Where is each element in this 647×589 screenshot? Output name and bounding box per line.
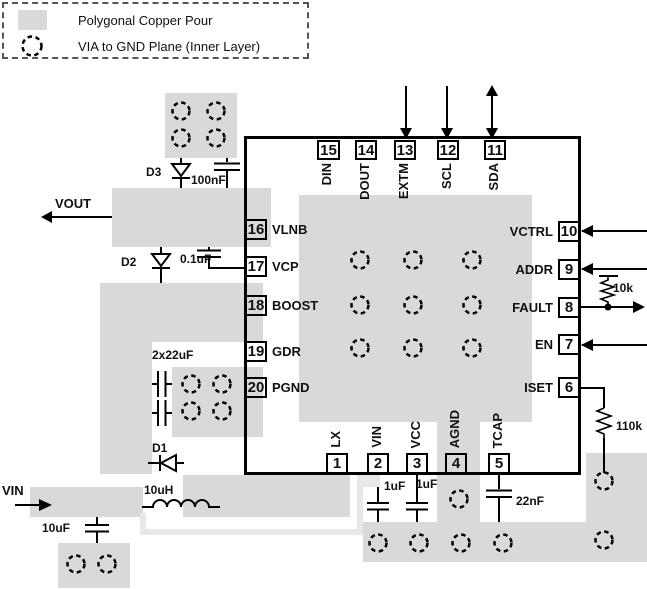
schematic-overlay bbox=[0, 0, 647, 589]
c22nf-symbol bbox=[486, 474, 512, 522]
pin-box-10: 10 bbox=[558, 221, 580, 242]
pin-label-pgnd: PGND bbox=[272, 381, 310, 396]
pin-box-13: 13 bbox=[394, 140, 416, 160]
pin-number: 15 bbox=[320, 143, 337, 158]
pin-box-11: 11 bbox=[484, 140, 506, 160]
pin-number: 6 bbox=[565, 380, 573, 395]
pin-box-20: 20 bbox=[245, 377, 267, 398]
vctrl-arrowhead-icon bbox=[581, 225, 593, 237]
ref-d3: D3 bbox=[146, 165, 161, 179]
pin-number: 4 bbox=[452, 456, 460, 471]
pin-label-sda: SDA bbox=[487, 163, 500, 190]
via-icon bbox=[596, 473, 613, 490]
via-icon bbox=[173, 130, 190, 147]
pin-number: 16 bbox=[248, 222, 265, 237]
val-0p1uf: 0.1uF bbox=[180, 252, 211, 266]
sda-up-arrowhead-icon bbox=[486, 85, 498, 96]
addr-arrowhead-icon bbox=[581, 263, 593, 275]
pin-number: 18 bbox=[248, 298, 265, 313]
d2-cathode-lead bbox=[152, 268, 170, 283]
legend-copper-pour-label: Polygonal Copper Pour bbox=[78, 13, 212, 28]
d1-diode-icon bbox=[161, 455, 176, 471]
via-icon bbox=[370, 535, 387, 552]
pin-label-agnd: AGND bbox=[448, 410, 461, 448]
val-100nf: 100nF bbox=[191, 173, 226, 187]
via-icon bbox=[208, 103, 225, 120]
via-icon bbox=[405, 340, 422, 357]
pin-box-7: 7 bbox=[558, 334, 580, 355]
via-icon bbox=[411, 535, 428, 552]
pcb-layout-diagram: Polygonal Copper Pour VIA to GND Plane (… bbox=[0, 0, 647, 589]
c10uf-symbol bbox=[85, 517, 109, 543]
via-icon bbox=[405, 297, 422, 314]
via-icon bbox=[183, 403, 200, 420]
pin-label-tcap: TCAP bbox=[491, 413, 504, 448]
via-icon bbox=[453, 535, 470, 552]
pin-box-12: 12 bbox=[437, 140, 459, 160]
via-icon bbox=[173, 103, 190, 120]
fault-arrowhead-icon bbox=[633, 301, 645, 313]
en-arrowhead-icon bbox=[581, 339, 593, 351]
pin-label-vctrl: VCTRL bbox=[470, 225, 553, 240]
pin-box-5: 5 bbox=[488, 453, 510, 474]
pin-label-lx: LX bbox=[329, 431, 342, 448]
d2-diode-icon bbox=[152, 254, 170, 266]
via-icon bbox=[68, 556, 85, 573]
via-icon bbox=[214, 403, 231, 420]
pin-label-vcc: VCC bbox=[409, 421, 422, 448]
iset-wire bbox=[580, 388, 604, 408]
via-icon bbox=[99, 556, 116, 573]
pin-number: 8 bbox=[565, 300, 573, 315]
pin-box-3: 3 bbox=[406, 453, 428, 474]
pin-label-boost: BOOST bbox=[272, 299, 318, 314]
pin-number: 17 bbox=[248, 259, 265, 274]
pin-box-18: 18 bbox=[245, 295, 267, 316]
pin-label-vin: VIN bbox=[370, 426, 383, 448]
val-10k: 10k bbox=[613, 281, 633, 295]
vout-arrowhead-icon bbox=[41, 211, 52, 223]
pin-box-19: 19 bbox=[245, 341, 267, 362]
sda-down-arrowhead-icon bbox=[486, 128, 498, 139]
via-icon bbox=[596, 532, 613, 549]
legend-via-gnd-label: VIA to GND Plane (Inner Layer) bbox=[78, 39, 260, 54]
val-10uf: 10uF bbox=[42, 521, 70, 535]
pin-label-gdr: GDR bbox=[272, 345, 301, 360]
pin-number: 19 bbox=[248, 344, 265, 359]
pin-box-2: 2 bbox=[367, 453, 389, 474]
pin-label-en: EN bbox=[470, 338, 553, 353]
pin-number: 12 bbox=[440, 143, 457, 158]
pin-label-dout: DOUT bbox=[358, 163, 371, 200]
pin-box-4: 4 bbox=[445, 453, 467, 474]
via-icon bbox=[352, 252, 369, 269]
pin-label-addr: ADDR bbox=[470, 263, 553, 278]
pin-number: 9 bbox=[565, 262, 573, 277]
pin-number: 13 bbox=[397, 143, 414, 158]
copper-pour-swatch-icon bbox=[18, 10, 47, 30]
pin-label-din: DIN bbox=[320, 163, 333, 185]
pin-number: 20 bbox=[248, 380, 265, 395]
via-icon bbox=[352, 297, 369, 314]
pin-number: 5 bbox=[495, 456, 503, 471]
pin-label-vlnb: VLNB bbox=[272, 223, 307, 238]
via-icon bbox=[183, 376, 200, 393]
vin-arrowhead-icon bbox=[39, 499, 52, 511]
val-110k: 110k bbox=[616, 419, 642, 433]
net-label-vout: VOUT bbox=[55, 197, 91, 212]
net-label-vin: VIN bbox=[2, 484, 24, 499]
pin-number: 2 bbox=[374, 456, 382, 471]
pin-box-8: 8 bbox=[558, 297, 580, 318]
via-icon bbox=[495, 535, 512, 552]
pin-label-iset: ISET bbox=[470, 381, 553, 396]
pin-box-9: 9 bbox=[558, 259, 580, 280]
via-icon bbox=[214, 376, 231, 393]
d3-cathode-lead bbox=[172, 178, 190, 188]
pin-box-15: 15 bbox=[317, 140, 340, 160]
via-icon bbox=[352, 340, 369, 357]
pin-number: 10 bbox=[561, 224, 578, 239]
pin-number: 14 bbox=[358, 143, 375, 158]
extm-arrowhead-icon bbox=[400, 128, 412, 139]
d1-cathode-lead bbox=[148, 455, 160, 471]
pin-label-scl: SCL bbox=[440, 163, 453, 189]
r110k-zigzag bbox=[597, 408, 611, 438]
pin-box-1: 1 bbox=[326, 453, 348, 474]
val-10uh: 10uH bbox=[144, 483, 173, 497]
pin-label-vcp: VCP bbox=[272, 260, 299, 275]
c22uf-b-symbol bbox=[152, 400, 172, 426]
pin-box-6: 6 bbox=[558, 377, 580, 398]
pin-label-extm: EXTM bbox=[397, 163, 410, 199]
pin-number: 11 bbox=[487, 143, 503, 158]
ref-d1: D1 bbox=[152, 441, 167, 455]
pin-number: 7 bbox=[565, 337, 573, 352]
scl-arrowhead-icon bbox=[441, 128, 453, 139]
pin-label-fault: FAULT bbox=[470, 301, 553, 316]
d3-diode-icon bbox=[172, 164, 190, 176]
fault-junction-dot bbox=[605, 304, 612, 311]
val-22nf: 22nF bbox=[516, 494, 544, 508]
pin-box-16: 16 bbox=[245, 219, 267, 240]
via-icon bbox=[451, 491, 468, 508]
ref-d2: D2 bbox=[121, 255, 136, 269]
val-2x22uf: 2x22uF bbox=[152, 348, 193, 362]
l10uh-symbol bbox=[142, 500, 220, 507]
pin-box-14: 14 bbox=[355, 140, 377, 160]
val-1uf-vin: 1uF bbox=[384, 479, 405, 493]
via-icon bbox=[405, 252, 422, 269]
pin-number: 1 bbox=[333, 456, 341, 471]
c22uf-a-symbol bbox=[152, 371, 172, 397]
pin-box-17: 17 bbox=[245, 256, 267, 277]
via-icon bbox=[208, 130, 225, 147]
val-1uf-vcc: 1uF bbox=[416, 477, 437, 491]
pin-number: 3 bbox=[413, 456, 421, 471]
